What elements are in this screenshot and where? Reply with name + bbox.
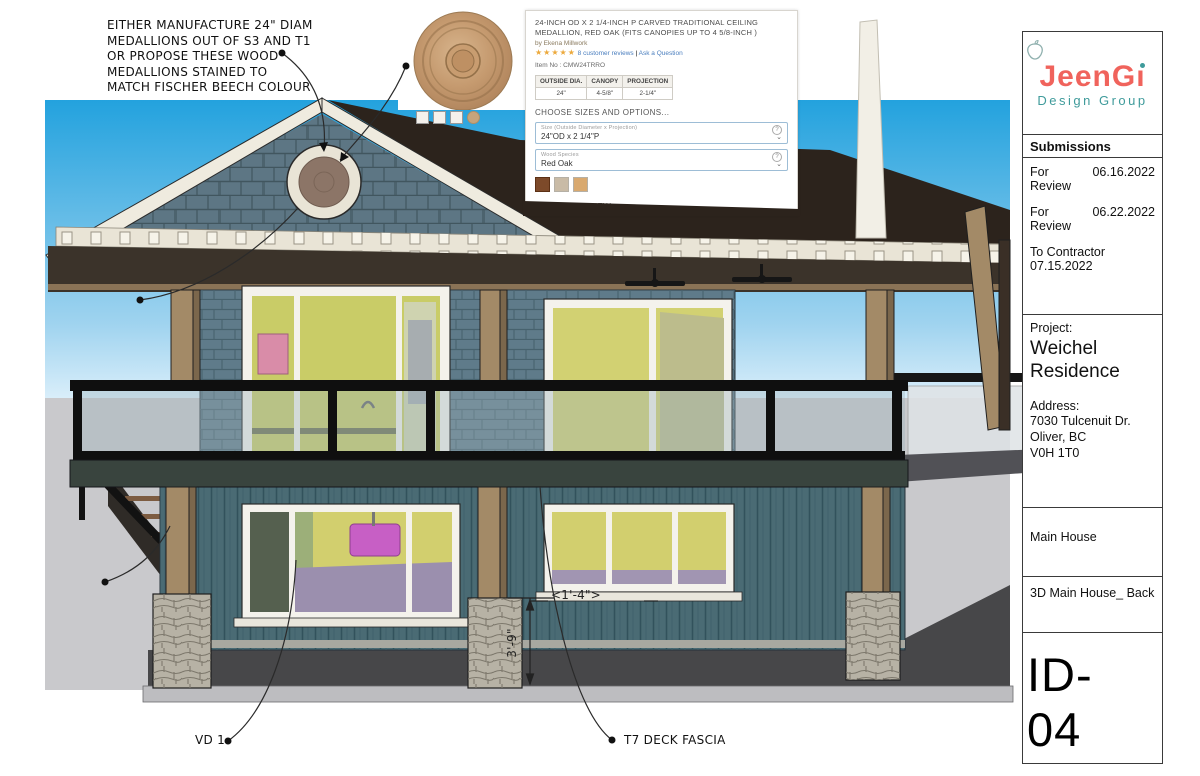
chevron-down-icon: ⌄ [776, 134, 782, 141]
product-listing-card: 24-INCH OD X 2 1/4-INCH P CARVED TRADITI… [525, 10, 798, 215]
species-select-value: Red Oak [541, 159, 782, 168]
scope-box: Main House [1022, 507, 1163, 577]
size-select-value: 24"OD x 2 1/4"P [541, 132, 782, 141]
submission-entry: To Contractor 07.15.2022 [1030, 245, 1155, 273]
spec-value: 4-5/8" [587, 88, 623, 100]
swatch-maple[interactable] [554, 177, 569, 192]
spec-value: 24" [536, 88, 587, 100]
sheet-page: 24-INCH OD X 2 1/4-INCH P CARVED TRADITI… [0, 0, 1200, 776]
brand-i-dot [1140, 63, 1145, 68]
submissions-list: For Review 06.16.2022 For Review 06.22.2… [1022, 157, 1163, 315]
chimney [856, 20, 886, 238]
brand-name: JeenGı [1039, 62, 1145, 92]
thumbnail[interactable] [433, 111, 446, 124]
submission-label: For Review [1030, 205, 1082, 233]
spec-header: OUTSIDE DIA. [536, 76, 587, 88]
product-thumbnails[interactable] [416, 111, 480, 124]
lower-left-window [234, 504, 468, 627]
submission-date: 06.22.2022 [1092, 205, 1155, 233]
overview-heading: QUICK OVERVIEW [535, 202, 788, 211]
gable-medallion [287, 145, 361, 219]
wood-swatches [535, 177, 788, 192]
apple-logo-icon [1023, 38, 1047, 62]
submission-entry: For Review 06.16.2022 [1030, 165, 1155, 193]
submission-label: For Review [1030, 165, 1082, 193]
species-select-label: Wood Species [541, 152, 782, 158]
brand-tagline: Design Group [1023, 93, 1162, 108]
title-block: JeenGı Design Group Submissions For Revi… [1022, 32, 1163, 764]
star-rating-icon: ★★★★★ [535, 48, 576, 57]
project-name: Weichel Residence [1030, 337, 1155, 383]
reviews-link[interactable]: 8 customer reviews [578, 50, 634, 57]
chevron-down-icon: ⌄ [776, 161, 782, 168]
size-select[interactable]: Size (Outside Diameter x Projection) 24"… [535, 122, 788, 144]
height-dimension: 3'-9" [505, 621, 519, 665]
thumbnail[interactable] [450, 111, 463, 124]
item-number: Item No : CMW24TRRO [535, 62, 788, 69]
deck-fascia [70, 460, 908, 487]
spec-table: OUTSIDE DIA. CANOPY PROJECTION 24" 4-5/8… [535, 75, 673, 100]
submission-date: 07.15.2022 [1030, 259, 1155, 273]
submission-label: To Contractor [1030, 245, 1155, 259]
spec-header: CANOPY [587, 76, 623, 88]
submission-date: 06.16.2022 [1092, 165, 1155, 193]
logo-box: JeenGı Design Group [1022, 31, 1163, 135]
options-heading: CHOOSE SIZES AND OPTIONS... [535, 108, 788, 117]
sheet-id: ID- 04 [1022, 632, 1163, 764]
product-photo [398, 6, 532, 110]
product-title: 24-INCH OD X 2 1/4-INCH P CARVED TRADITI… [535, 18, 788, 37]
spec-header: PROJECTION [623, 76, 673, 88]
links-divider: | [635, 50, 637, 57]
submissions-heading: Submissions [1022, 134, 1163, 158]
thumbnail[interactable] [416, 111, 429, 124]
address-label: Address: [1030, 399, 1155, 413]
wood-species-select[interactable]: Wood Species Red Oak ? ⌄ [535, 149, 788, 171]
deck-railing [70, 380, 908, 464]
project-box: Project: Weichel Residence Address: 7030… [1022, 314, 1163, 508]
view-name-box: 3D Main House_ Back [1022, 576, 1163, 633]
swatch-red-oak[interactable] [535, 177, 550, 192]
project-label: Project: [1030, 321, 1155, 335]
product-byline: by Ekena Millwork [535, 40, 788, 47]
submission-entry: For Review 06.22.2022 [1030, 205, 1155, 233]
spec-value: 2-1/4" [623, 88, 673, 100]
thumbnail-round[interactable] [467, 111, 480, 124]
project-address: 7030 Tulcenuit Dr. Oliver, BC V0H 1T0 [1030, 413, 1155, 461]
lower-right-window [536, 504, 742, 601]
swatch-oak[interactable] [573, 177, 588, 192]
width-dimension: <1'-4"> [551, 588, 601, 602]
size-select-label: Size (Outside Diameter x Projection) [541, 125, 782, 131]
ask-question-link[interactable]: Ask a Question [639, 50, 683, 57]
